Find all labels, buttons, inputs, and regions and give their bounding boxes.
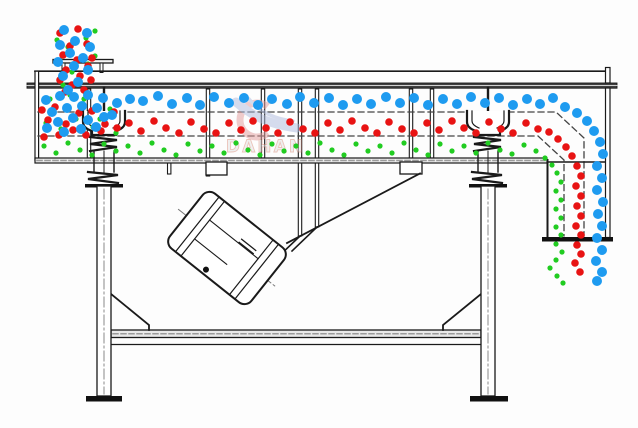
red-particle xyxy=(460,124,468,132)
red-particle xyxy=(534,125,542,133)
green-particle xyxy=(497,147,502,152)
blue-particle xyxy=(592,276,602,286)
green-particle xyxy=(521,142,526,147)
green-particle xyxy=(233,140,238,145)
vibrating-screen-diagram: ® DAHAN xyxy=(0,0,638,428)
green-particle xyxy=(553,188,558,193)
blue-particle xyxy=(83,65,93,75)
red-particle xyxy=(162,124,170,132)
green-particle xyxy=(485,140,490,145)
red-particle xyxy=(137,127,145,135)
green-particle xyxy=(553,241,558,246)
green-particle xyxy=(65,140,70,145)
blue-particle xyxy=(508,100,518,110)
blue-particle xyxy=(535,99,545,109)
green-particle xyxy=(281,148,286,153)
left-brace xyxy=(111,294,149,330)
green-particle xyxy=(554,170,559,175)
red-particle xyxy=(87,76,95,84)
red-particle xyxy=(448,117,456,125)
red-particle xyxy=(274,129,282,137)
blue-particle xyxy=(47,107,57,117)
green-particle xyxy=(341,152,346,157)
blue-particle xyxy=(73,77,83,87)
green-particle xyxy=(317,140,322,145)
diagram-canvas: ® DAHAN xyxy=(0,0,638,428)
green-particle xyxy=(509,151,514,156)
blue-particle xyxy=(41,95,51,105)
blue-particle xyxy=(598,197,608,207)
blue-particle xyxy=(597,173,607,183)
red-particle xyxy=(38,106,46,114)
red-particle xyxy=(348,117,356,125)
green-particle xyxy=(461,143,466,148)
red-particle xyxy=(237,126,245,134)
red-particle xyxy=(485,118,493,126)
red-particle xyxy=(497,125,505,133)
red-particle xyxy=(361,124,369,132)
red-particle xyxy=(311,129,319,137)
blue-particle xyxy=(65,48,75,58)
red-particle xyxy=(554,135,562,143)
green-particle xyxy=(353,141,358,146)
red-particle xyxy=(472,129,480,137)
green-particle xyxy=(553,224,558,229)
green-particle xyxy=(113,148,118,153)
green-particle xyxy=(425,152,430,157)
green-particle xyxy=(245,147,250,152)
green-particle xyxy=(389,150,394,155)
blue-particle xyxy=(112,98,122,108)
red-particle xyxy=(286,118,294,126)
red-particle xyxy=(175,129,183,137)
green-particle xyxy=(547,265,552,270)
blue-particle xyxy=(83,90,93,100)
left-leg xyxy=(86,186,122,402)
red-particle xyxy=(577,231,585,239)
green-particle xyxy=(558,179,563,184)
blue-particle xyxy=(282,99,292,109)
blue-particle xyxy=(78,53,88,63)
red-particle xyxy=(576,268,584,276)
green-particle xyxy=(41,143,46,148)
blue-particle xyxy=(42,123,52,133)
red-particle xyxy=(200,125,208,133)
deck-right-end-cap xyxy=(606,68,611,84)
red-particle xyxy=(69,126,77,134)
green-particle xyxy=(365,148,370,153)
motor-body xyxy=(165,188,290,308)
blue-particle xyxy=(324,93,334,103)
red-particle xyxy=(398,125,406,133)
red-particle xyxy=(423,119,431,127)
red-particle xyxy=(577,212,585,220)
blue-particle xyxy=(53,117,63,127)
blue-particle xyxy=(253,100,263,110)
blue-particle xyxy=(295,92,305,102)
right-leg xyxy=(470,186,508,402)
deck-left-wall xyxy=(35,71,39,160)
blue-particle xyxy=(55,91,65,101)
blue-particle xyxy=(68,113,78,123)
blue-particle xyxy=(598,149,608,159)
red-particle xyxy=(385,118,393,126)
blue-particle xyxy=(99,112,109,122)
green-particle xyxy=(305,150,310,155)
green-particle xyxy=(377,143,382,148)
red-particle xyxy=(577,192,585,200)
blue-particle xyxy=(167,99,177,109)
green-particle xyxy=(554,273,559,278)
right-foot-pad xyxy=(470,396,508,402)
chute-bottom-bar xyxy=(542,237,613,242)
cross-beam xyxy=(111,330,481,345)
red-particle xyxy=(336,126,344,134)
blue-particle xyxy=(62,103,72,113)
green-particle xyxy=(137,150,142,155)
blue-particle xyxy=(572,108,582,118)
blue-particle xyxy=(548,93,558,103)
blue-particle xyxy=(592,233,602,243)
blue-particle xyxy=(366,99,376,109)
green-particle xyxy=(185,141,190,146)
blue-particle xyxy=(55,40,65,50)
blue-particle xyxy=(53,57,63,67)
blue-particle xyxy=(338,100,348,110)
blue-particle xyxy=(582,116,592,126)
green-particle xyxy=(560,280,565,285)
blue-particle xyxy=(381,92,391,102)
deck-bottom-plate xyxy=(35,158,547,163)
green-particle xyxy=(269,141,274,146)
red-particle xyxy=(410,129,418,137)
red-particle xyxy=(562,143,570,151)
blue-particle xyxy=(309,98,319,108)
green-particle xyxy=(558,197,563,202)
green-particle xyxy=(161,147,166,152)
green-particle xyxy=(549,162,554,167)
blue-particle xyxy=(593,209,603,219)
green-particle xyxy=(257,152,262,157)
blue-particle xyxy=(591,256,601,266)
discharge-right-wall xyxy=(606,88,611,238)
blue-particle xyxy=(480,98,490,108)
green-particle xyxy=(209,143,214,148)
blue-particle xyxy=(138,96,148,106)
red-particle xyxy=(62,120,70,128)
green-particle xyxy=(473,150,478,155)
red-particle xyxy=(324,119,332,127)
spring-coil-lower xyxy=(472,172,502,183)
blue-particle xyxy=(592,185,602,195)
blue-particle xyxy=(91,122,101,132)
green-particle xyxy=(125,143,130,148)
red-particle xyxy=(568,152,576,160)
blue-particle xyxy=(69,61,79,71)
green-particle xyxy=(77,147,82,152)
red-particle xyxy=(187,118,195,126)
blue-particle xyxy=(153,91,163,101)
blue-particle xyxy=(83,115,93,125)
green-particle xyxy=(449,148,454,153)
blue-particle xyxy=(597,267,607,277)
green-particle xyxy=(559,249,564,254)
red-particle xyxy=(572,222,580,230)
red-particle xyxy=(212,129,220,137)
blue-particle xyxy=(76,124,86,134)
green-particle xyxy=(92,28,97,33)
green-particle xyxy=(89,152,94,157)
red-particle xyxy=(262,124,270,132)
blue-particle xyxy=(597,221,607,231)
green-particle xyxy=(329,147,334,152)
red-particle xyxy=(509,129,517,137)
mount-bracket-right xyxy=(400,162,422,174)
blue-particle xyxy=(267,94,277,104)
mount-bracket-left xyxy=(206,162,227,175)
blue-particle xyxy=(395,98,405,108)
red-particle xyxy=(545,128,553,136)
blue-particle xyxy=(209,92,219,102)
mount-strut xyxy=(287,174,420,244)
red-particle xyxy=(573,162,581,170)
blue-particle xyxy=(597,245,607,255)
green-particle xyxy=(558,232,563,237)
top-flange-band xyxy=(27,83,617,88)
red-particle xyxy=(40,133,48,141)
red-particle xyxy=(573,202,581,210)
blue-particle xyxy=(494,93,504,103)
blue-particle xyxy=(592,161,602,171)
particle-dots xyxy=(38,25,608,286)
blue-particle xyxy=(82,28,92,38)
green-particle xyxy=(173,152,178,157)
red-particle xyxy=(522,119,530,127)
blue-particle xyxy=(70,36,80,46)
spring-coil-lower xyxy=(88,172,118,183)
blue-particle xyxy=(125,94,135,104)
red-particle xyxy=(44,116,52,124)
red-particle xyxy=(577,250,585,258)
green-particle xyxy=(542,155,547,160)
green-particle xyxy=(553,257,558,262)
red-particle xyxy=(113,124,121,132)
red-particle xyxy=(74,25,82,33)
red-particle xyxy=(150,117,158,125)
blue-particle xyxy=(59,127,69,137)
blue-particle xyxy=(352,94,362,104)
blue-particle xyxy=(58,71,68,81)
blue-particle xyxy=(195,100,205,110)
green-particle xyxy=(221,150,226,155)
blue-particle xyxy=(466,92,476,102)
red-particle xyxy=(225,119,233,127)
blue-particle xyxy=(409,93,419,103)
green-particle xyxy=(101,141,106,146)
red-particle xyxy=(88,54,96,62)
blue-particle xyxy=(452,99,462,109)
blue-particle xyxy=(69,92,79,102)
blue-particle xyxy=(98,93,108,103)
blue-particle xyxy=(224,98,234,108)
green-particle xyxy=(197,148,202,153)
blue-particle xyxy=(85,42,95,52)
blue-particle xyxy=(560,102,570,112)
green-particle xyxy=(53,150,58,155)
blue-particle xyxy=(589,126,599,136)
red-particle xyxy=(299,125,307,133)
left-foot-pad xyxy=(86,396,122,402)
green-particle xyxy=(553,206,558,211)
red-particle xyxy=(573,241,581,249)
deck-rib xyxy=(430,89,433,158)
blue-particle xyxy=(59,25,69,35)
blue-particle xyxy=(423,100,433,110)
blue-particle xyxy=(77,101,87,111)
green-particle xyxy=(149,140,154,145)
red-particle xyxy=(249,117,257,125)
blue-particle xyxy=(239,93,249,103)
green-particle xyxy=(401,140,406,145)
blue-particle xyxy=(182,93,192,103)
red-particle xyxy=(572,182,580,190)
red-particle xyxy=(125,119,133,127)
right-brace xyxy=(443,294,481,330)
green-particle xyxy=(413,147,418,152)
green-particle xyxy=(437,141,442,146)
red-particle xyxy=(373,129,381,137)
red-particle xyxy=(571,259,579,267)
green-particle xyxy=(293,143,298,148)
green-particle xyxy=(533,148,538,153)
red-particle xyxy=(577,172,585,180)
blue-particle xyxy=(522,94,532,104)
blue-particle xyxy=(438,94,448,104)
red-particle xyxy=(435,126,443,134)
blue-particle xyxy=(595,137,605,147)
blue-particle xyxy=(92,103,102,113)
green-particle xyxy=(558,215,563,220)
vibration-motor xyxy=(157,182,298,314)
